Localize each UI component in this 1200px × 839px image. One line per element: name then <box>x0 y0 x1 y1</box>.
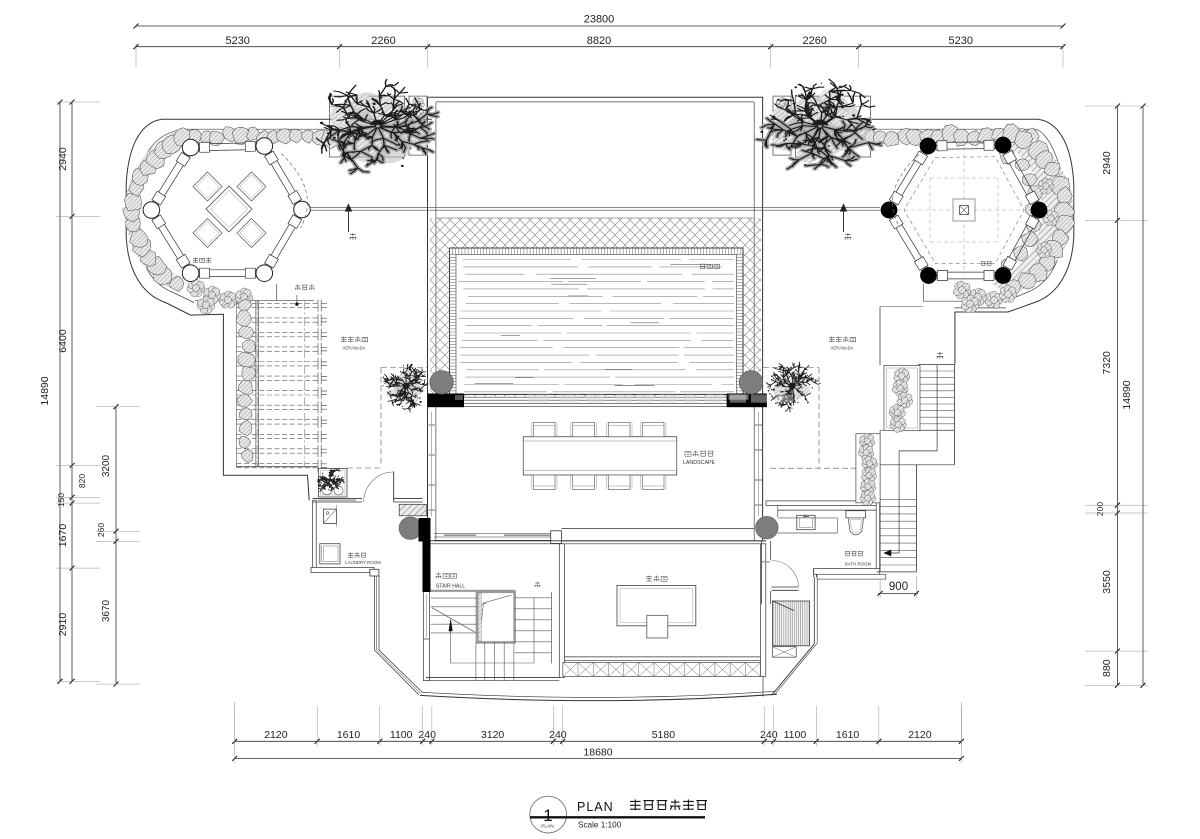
svg-text:1: 1 <box>543 806 552 825</box>
svg-text:LAUNDRY ROOM: LAUNDRY ROOM <box>345 560 381 565</box>
svg-text:7320: 7320 <box>1101 351 1113 375</box>
svg-text:2120: 2120 <box>908 729 932 741</box>
svg-text:1670: 1670 <box>57 524 69 548</box>
svg-text:PLAN: PLAN <box>577 800 614 814</box>
svg-text:18680: 18680 <box>583 747 612 759</box>
svg-text:260: 260 <box>96 523 106 537</box>
svg-text:PLAN: PLAN <box>541 824 554 830</box>
svg-text:2260: 2260 <box>802 35 826 47</box>
svg-text:5180: 5180 <box>652 729 676 741</box>
svg-text:150: 150 <box>56 493 66 507</box>
svg-text:2940: 2940 <box>1101 151 1113 175</box>
svg-text:23800: 23800 <box>584 14 615 26</box>
svg-text:14890: 14890 <box>1121 380 1133 409</box>
svg-text:2940: 2940 <box>57 147 69 171</box>
svg-text:1610: 1610 <box>836 729 860 741</box>
svg-text:1610: 1610 <box>337 729 361 741</box>
svg-text:LANDSCAPE: LANDSCAPE <box>683 460 716 466</box>
svg-text:900: 900 <box>889 581 908 593</box>
svg-text:820: 820 <box>77 474 87 488</box>
svg-text:240: 240 <box>418 729 436 741</box>
svg-text:8820: 8820 <box>587 35 611 47</box>
svg-text:3550: 3550 <box>1101 570 1113 594</box>
svg-text:1100: 1100 <box>390 729 413 741</box>
svg-text:1100: 1100 <box>784 729 807 741</box>
svg-text:3120: 3120 <box>481 729 505 741</box>
svg-text:BATH ROOM: BATH ROOM <box>845 562 872 567</box>
svg-text:VERANADA: VERANADA <box>830 346 853 351</box>
svg-text:6400: 6400 <box>57 329 69 353</box>
svg-text:200: 200 <box>1095 502 1105 516</box>
svg-text:3200: 3200 <box>101 454 112 477</box>
svg-text:14890: 14890 <box>39 376 51 405</box>
svg-text:2120: 2120 <box>264 729 288 741</box>
svg-text:5230: 5230 <box>225 35 249 47</box>
svg-text:2910: 2910 <box>57 613 69 637</box>
svg-text:5230: 5230 <box>949 35 973 47</box>
svg-text:880: 880 <box>1101 659 1113 677</box>
svg-text:2260: 2260 <box>371 35 395 47</box>
svg-text:240: 240 <box>549 729 567 741</box>
svg-text:STAIR HALL: STAIR HALL <box>436 584 465 590</box>
svg-text:VERANADA: VERANADA <box>342 346 365 351</box>
svg-text:240: 240 <box>760 729 778 741</box>
svg-text:Scale 1:100: Scale 1:100 <box>578 821 622 830</box>
svg-text:3670: 3670 <box>101 599 112 622</box>
